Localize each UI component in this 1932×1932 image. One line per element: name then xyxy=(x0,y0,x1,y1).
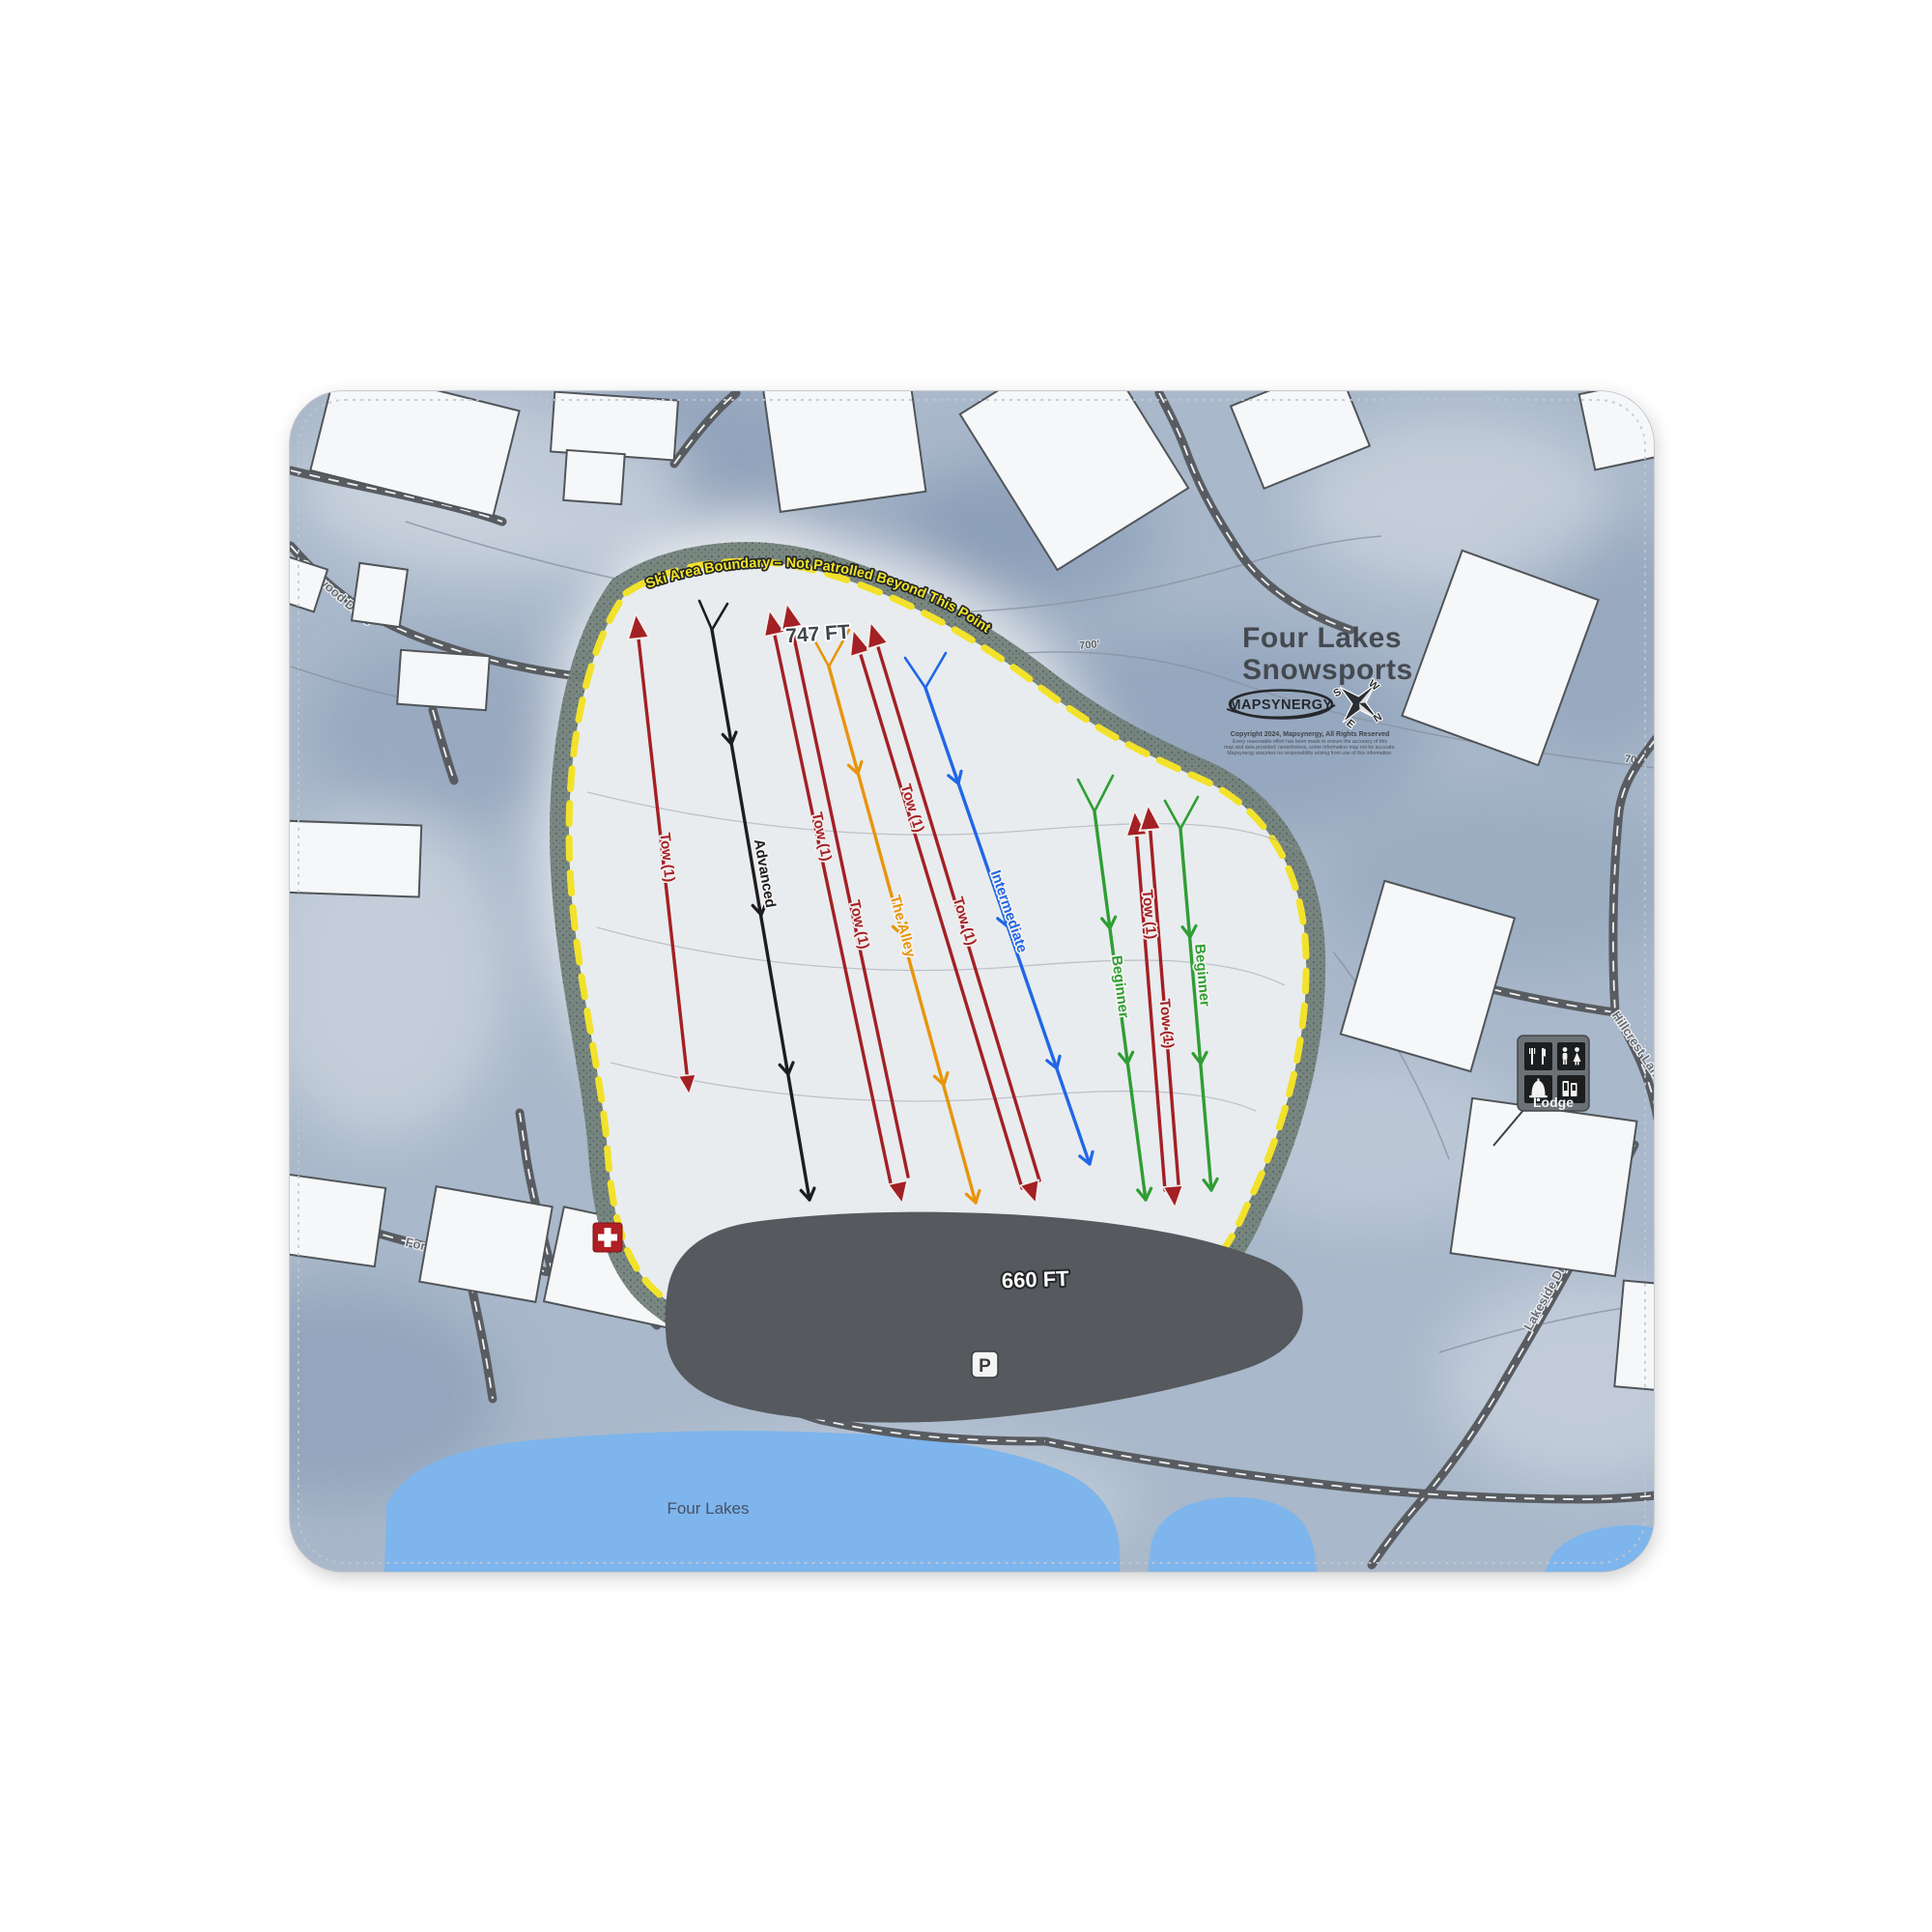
building xyxy=(1451,1098,1637,1276)
credit-line: Copyright 2024, Mapsynergy, All Rights R… xyxy=(1231,731,1390,738)
trail-map-product-photo: 700' 700' Four Lakes Oakwood xyxy=(0,0,1932,1932)
base-elevation-label: 660 FT xyxy=(1001,1266,1069,1293)
lake-label: Four Lakes xyxy=(667,1499,749,1518)
credit-line: Mapsynergy assumes no responsibility ari… xyxy=(1227,751,1392,756)
building xyxy=(352,563,408,627)
parking-icon-letter: P xyxy=(979,1356,991,1377)
building xyxy=(763,365,926,512)
map-title-line2: Snowsports xyxy=(1242,654,1413,686)
building xyxy=(563,450,624,504)
building xyxy=(397,650,490,710)
building xyxy=(1614,1281,1681,1392)
first-aid-icon xyxy=(593,1223,622,1252)
building xyxy=(278,820,421,896)
logo-text: MAPSYNERGY xyxy=(1229,697,1332,713)
summit-elevation-label: 747 FT xyxy=(785,621,851,648)
map-credits: Copyright 2024, Mapsynergy, All Rights R… xyxy=(1224,731,1396,756)
map-title-line1: Four Lakes xyxy=(1242,622,1402,654)
building xyxy=(271,1174,385,1266)
lodge-label: Lodge xyxy=(1533,1094,1574,1110)
building xyxy=(1579,377,1681,470)
contour-label: 700' xyxy=(1079,639,1100,652)
building xyxy=(419,1186,553,1302)
